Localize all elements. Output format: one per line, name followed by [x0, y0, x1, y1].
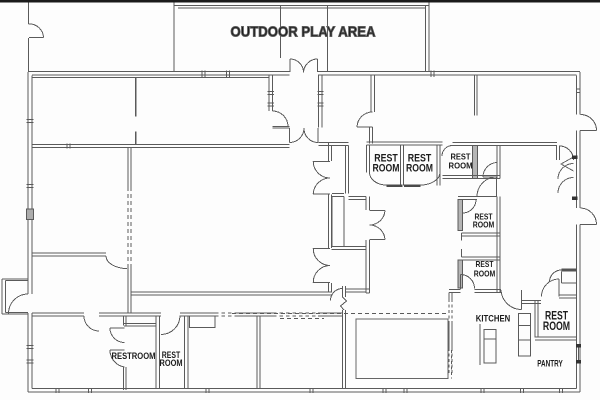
svg-text:ROOM: ROOM — [474, 268, 496, 278]
svg-text:PANTRY: PANTRY — [537, 359, 563, 369]
svg-text:ROOM: ROOM — [543, 319, 570, 333]
svg-text:OUTDOOR PLAY AREA: OUTDOOR PLAY AREA — [231, 24, 376, 41]
svg-text:ROOM: ROOM — [373, 163, 400, 175]
svg-text:RESTROOM: RESTROOM — [112, 351, 156, 361]
svg-text:ROOM: ROOM — [160, 358, 183, 368]
svg-text:REST: REST — [476, 259, 495, 269]
svg-text:ROOM: ROOM — [449, 161, 473, 171]
svg-text:ROOM: ROOM — [406, 163, 433, 175]
svg-text:KITCHEN: KITCHEN — [476, 314, 511, 324]
svg-text:ROOM: ROOM — [473, 220, 495, 230]
